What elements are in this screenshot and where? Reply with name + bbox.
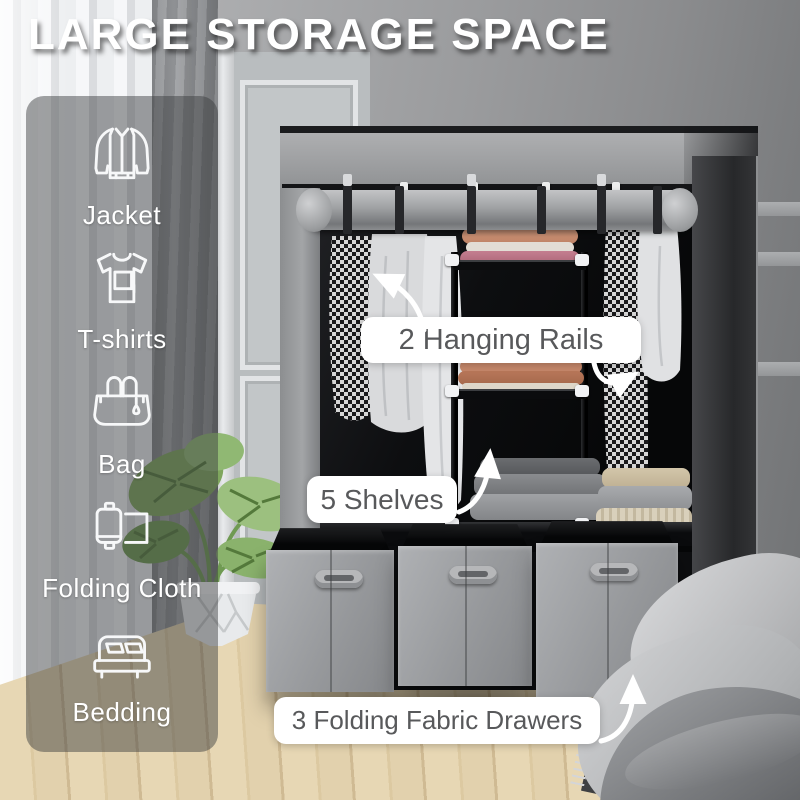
product-scene: Jacket T-shirts Bag — [0, 0, 800, 800]
door-strap — [597, 186, 606, 234]
folded-towel-grey — [598, 486, 692, 510]
folded-towel-beige — [602, 468, 690, 488]
frame-connector — [575, 385, 589, 397]
wall-molding-band — [756, 202, 800, 216]
fabric-drawer — [266, 550, 394, 692]
wall-molding-band — [756, 252, 800, 266]
sidebar-item-label: T-shirts — [77, 324, 166, 355]
frame-connector — [445, 254, 459, 266]
drawer-opening — [536, 519, 678, 545]
feature-sidebar: Jacket T-shirts Bag — [26, 96, 218, 752]
sidebar-item-label: Bedding — [73, 697, 172, 728]
strap-buckle — [597, 174, 606, 186]
door-strap — [343, 186, 352, 234]
wall-molding-band — [756, 362, 800, 376]
drawer-front — [398, 546, 532, 686]
drawer-opening — [266, 526, 394, 552]
drawer-front — [266, 550, 394, 692]
shelf — [454, 260, 586, 270]
page-title: LARGE STORAGE SPACE — [28, 10, 610, 60]
jacket-icon — [84, 116, 160, 192]
bedding-icon — [84, 613, 160, 689]
rolled-up-door — [302, 190, 692, 230]
strap-buckle — [343, 174, 352, 186]
callout-hanging-rails: 2 Hanging Rails — [361, 317, 641, 363]
sidebar-item-bag: Bag — [26, 365, 218, 480]
callout-shelves: 5 Shelves — [307, 476, 457, 523]
sidebar-item-label: Jacket — [83, 200, 161, 231]
door-strap — [395, 186, 404, 234]
sidebar-item-label: Folding Cloth — [42, 573, 202, 604]
frame-connector — [575, 254, 589, 266]
shelf — [454, 389, 586, 399]
door-strap — [653, 186, 662, 234]
roll-end-cap — [662, 188, 698, 232]
roll-end-cap — [296, 188, 332, 232]
drawer-handle — [315, 570, 363, 588]
frame-connector — [445, 385, 459, 397]
door-strap — [467, 186, 476, 234]
folded-grey-clothes — [470, 494, 610, 520]
drawer-handle — [449, 566, 497, 584]
sidebar-item-folding-cloth: Folding Cloth — [26, 489, 218, 604]
sidebar-item-tshirts: T-shirts — [26, 240, 218, 355]
sidebar-item-bedding: Bedding — [26, 613, 218, 728]
door-strap — [537, 186, 546, 234]
folded-grey-clothes — [474, 474, 606, 496]
tshirt-icon — [84, 240, 160, 316]
bag-icon — [84, 365, 160, 441]
sidebar-item-label: Bag — [98, 449, 146, 480]
callout-drawers: 3 Folding Fabric Drawers — [274, 697, 600, 744]
folding-cloth-icon — [84, 489, 160, 565]
drawer-opening — [398, 522, 532, 548]
strap-buckle — [467, 174, 476, 186]
drawer-handle — [590, 563, 638, 581]
fabric-drawer — [398, 546, 532, 686]
sidebar-item-jacket: Jacket — [26, 116, 218, 231]
